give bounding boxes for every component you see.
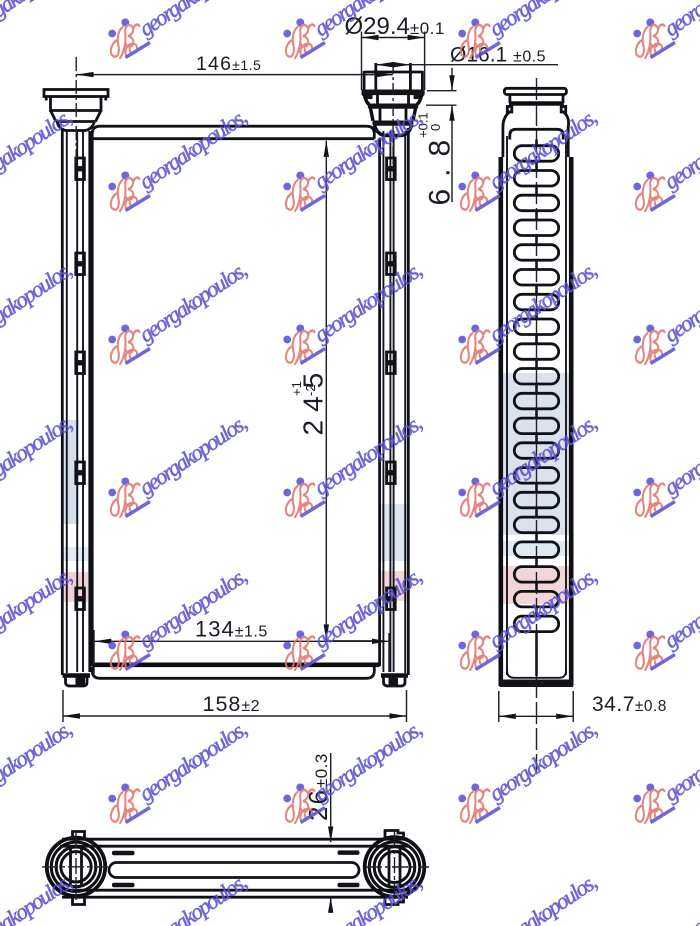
svg-text:0: 0: [428, 124, 443, 131]
svg-text:+1: +1: [289, 381, 304, 396]
svg-text:6.8: 6.8: [424, 128, 457, 206]
svg-text:245: 245: [298, 365, 329, 436]
svg-text:-2: -2: [303, 384, 318, 396]
svg-text:146±1.5: 146±1.5: [196, 53, 261, 75]
